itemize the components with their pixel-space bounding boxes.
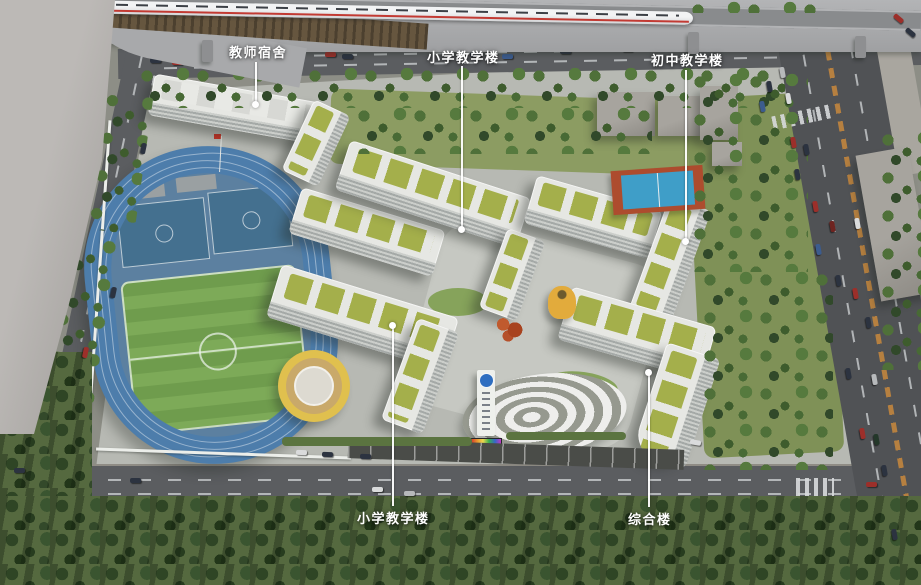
viaduct-pillar [202,40,213,62]
trees-campus-north [352,106,652,154]
red-maple-tree [488,310,530,346]
parked-car [296,450,307,455]
trees-east-strip [876,130,921,370]
basketball-court [207,184,293,254]
parked-car [322,452,333,457]
amphitheater [278,350,350,422]
trees-top-right [686,0,836,13]
anchor-dot [252,101,259,108]
parked-car [360,454,371,459]
leader-line [461,66,463,228]
label-complex-building: 综合楼 [628,509,672,528]
label-primary-teaching-north: 小学教学楼 [427,47,500,66]
car [404,491,415,496]
school-logo-badge [479,373,494,388]
car [325,52,336,57]
label-teacher-dormitory: 教师宿舍 [229,42,287,61]
hedge [282,437,472,446]
anchor-dot [682,238,689,245]
label-junior-teaching: 初中教学楼 [651,50,724,69]
trees-south-band [0,496,921,585]
leader-line [392,327,394,506]
campus-aerial-rendering: 教师宿舍 小学教学楼 初中教学楼 小学教学楼 综合楼 [0,0,921,585]
label-primary-teaching-south: 小学教学楼 [357,508,430,527]
car [130,478,141,483]
trees-east [698,270,833,470]
rocket-sculpture [548,286,576,319]
leader-line [685,70,687,240]
leader-line [648,374,650,507]
car [866,482,877,487]
anchor-dot [389,322,396,329]
hedge [506,432,626,440]
anchor-dot [458,226,465,233]
leader-line [255,62,257,104]
viaduct-pillar [855,36,866,58]
anchor-dot [645,369,652,376]
car [372,487,383,492]
crosswalk [796,478,834,498]
car [342,54,353,59]
tower-windows [482,392,490,430]
equipment-pad [176,174,217,193]
car [14,468,25,473]
clock-tower [477,370,495,436]
car [502,54,513,59]
